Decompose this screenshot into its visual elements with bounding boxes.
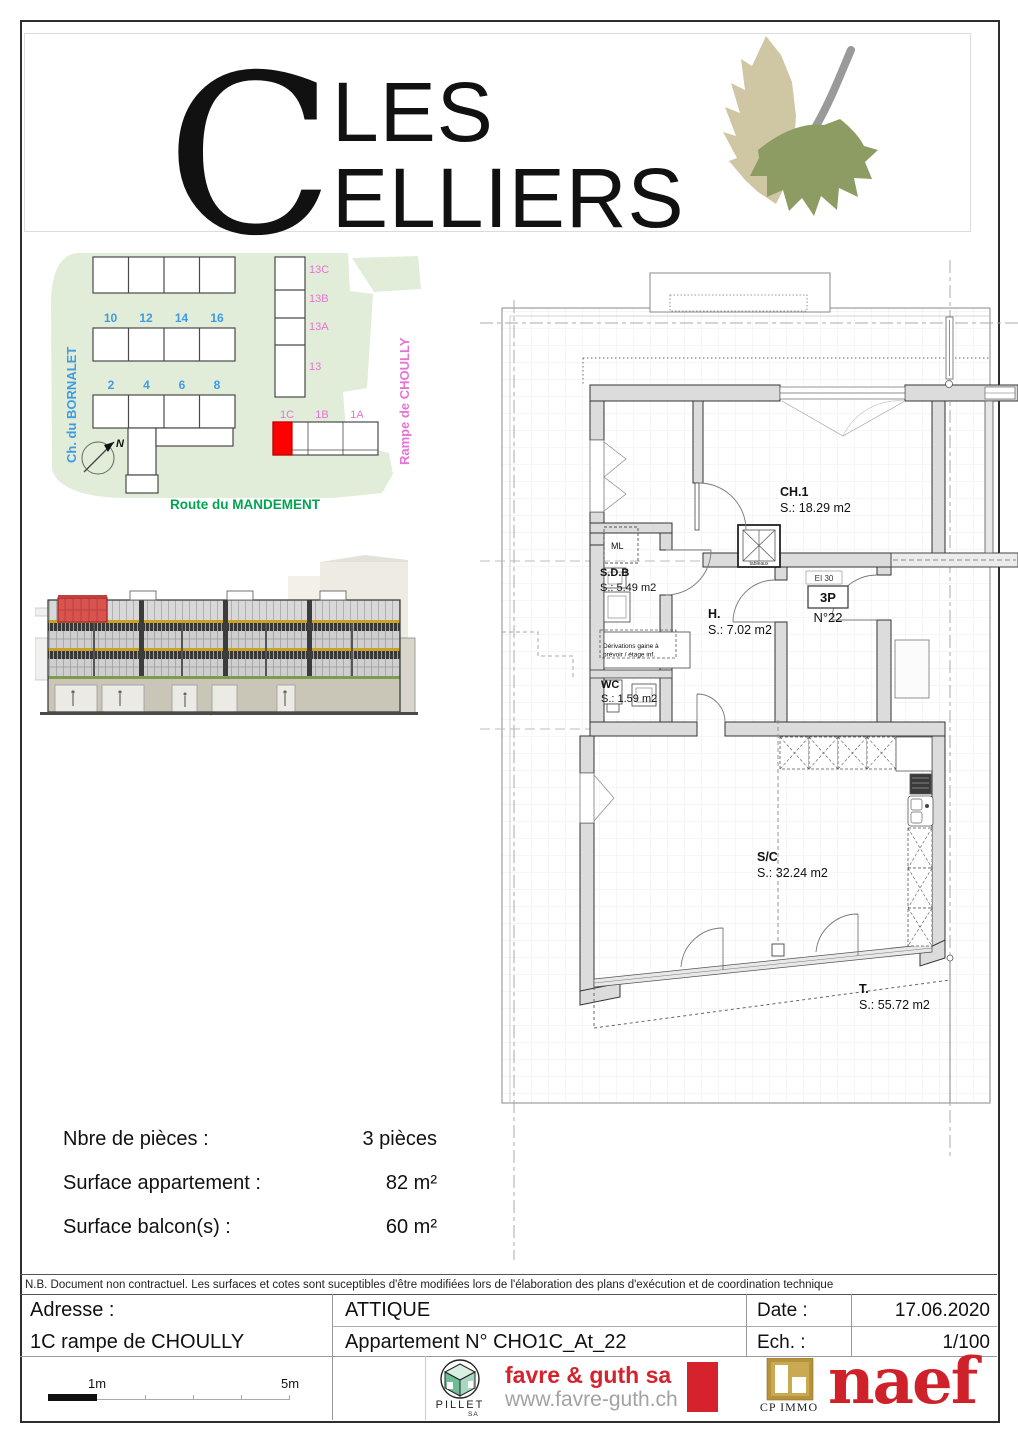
svg-text:8: 8 — [214, 378, 221, 392]
address-value: 1C rampe de CHOULLY — [30, 1331, 244, 1354]
summary-value-pieces: 3 pièces — [300, 1128, 437, 1151]
favre-guth-url: www.favre-guth.ch — [505, 1388, 678, 1412]
logo-word-elliers: ELLIERS — [332, 156, 685, 240]
date-value: 17.06.2020 — [862, 1300, 990, 1322]
summary-label-balcony: Surface balcon(s) : — [63, 1216, 231, 1239]
right-wall — [400, 638, 415, 714]
site-plan: 10 12 14 16 2 4 6 8 13C 13B 13A 13 1C 1B… — [40, 245, 470, 535]
highlighted-unit-1c — [273, 422, 292, 455]
svg-text:S.: 7.02 m2: S.: 7.02 m2 — [708, 623, 772, 637]
disclaimer-note: N.B. Document non contractuel. Les surfa… — [25, 1279, 975, 1291]
building-elevation — [35, 548, 450, 733]
site-plan-green-patch — [352, 256, 421, 292]
street-choully: Rampe de CHOULLY — [397, 337, 412, 465]
svg-text:CH.1: CH.1 — [780, 485, 809, 499]
svg-text:S/C: S/C — [757, 850, 778, 864]
floor-plan: tableaux — [480, 260, 1018, 1260]
svg-text:S.: 1.59 m2: S.: 1.59 m2 — [601, 693, 657, 705]
roof-drain — [946, 317, 954, 388]
svg-text:WC: WC — [601, 679, 619, 691]
scale-bar-5m: 5m — [275, 1376, 305, 1391]
street-mandement: Route du MANDEMENT — [170, 497, 321, 512]
summary-label-pieces: Nbre de pièces : — [63, 1128, 209, 1151]
svg-text:4: 4 — [143, 378, 150, 392]
apartment-number: Appartement N° CHO1C_At_22 — [345, 1331, 626, 1354]
door-number-label: N°22 — [813, 610, 842, 625]
naef-logo-text: naef — [828, 1350, 976, 1414]
cp-immo-text: CP IMMO — [753, 1400, 825, 1415]
svg-text:ML: ML — [611, 541, 624, 551]
svg-text:Dérivations gaine à: Dérivations gaine à — [603, 643, 659, 650]
favre-guth-name: favre & guth sa — [505, 1362, 671, 1389]
svg-text:H.: H. — [708, 607, 721, 621]
svg-text:13C: 13C — [309, 264, 329, 276]
pillet-logo-icon — [432, 1358, 488, 1400]
floor-value: ATTIQUE — [345, 1299, 430, 1322]
summary-label-apartment: Surface appartement : — [63, 1172, 261, 1195]
svg-text:2: 2 — [108, 378, 115, 392]
logo-initial: C — [166, 46, 334, 266]
street-bornalet: Ch. du BORNALET — [64, 347, 79, 463]
svg-text:1A: 1A — [350, 409, 364, 421]
leaf-stem — [816, 50, 851, 126]
svg-text:14: 14 — [175, 311, 189, 325]
svg-text:13B: 13B — [309, 293, 329, 305]
fire-rating-label: EI 30 — [815, 574, 834, 583]
svg-text:1B: 1B — [315, 409, 328, 421]
pillet-logo-text: PILLET — [430, 1399, 490, 1411]
summary-value-balcony: 60 m² — [300, 1216, 437, 1239]
pillet-logo-sub: SA — [468, 1411, 479, 1418]
svg-text:1C: 1C — [280, 409, 294, 421]
date-label: Date : — [757, 1300, 808, 1322]
svg-text:tableaux: tableaux — [750, 561, 769, 567]
address-label: Adresse : — [30, 1299, 114, 1322]
scale-label: Ech. : — [757, 1332, 806, 1354]
cp-immo-logo-icon — [755, 1358, 825, 1402]
svg-text:S.: 18.29 m2: S.: 18.29 m2 — [780, 501, 851, 515]
svg-text:13: 13 — [309, 361, 321, 373]
doormat — [895, 640, 929, 698]
highlighted-attic-unit — [58, 595, 107, 622]
svg-text:S.: 32.24 m2: S.: 32.24 m2 — [757, 866, 828, 880]
roof-protrusion — [650, 273, 830, 312]
svg-text:S.D.B: S.D.B — [600, 567, 629, 579]
svg-text:prévoir / étage inf.: prévoir / étage inf. — [603, 652, 655, 659]
terrace-field — [502, 308, 990, 1103]
svg-text:16: 16 — [210, 311, 224, 325]
svg-text:N: N — [116, 438, 125, 450]
svg-text:T.: T. — [859, 982, 869, 996]
svg-text:S.: 55.72 m2: S.: 55.72 m2 — [859, 998, 930, 1012]
neighbor-wall — [985, 401, 993, 553]
red-block-logo — [687, 1362, 718, 1412]
svg-text:13A: 13A — [309, 321, 329, 333]
svg-text:10: 10 — [104, 311, 118, 325]
logo-word-les: LES — [332, 70, 494, 154]
sdb-wc-partition — [590, 670, 672, 678]
scale-bar-filled — [48, 1394, 97, 1401]
svg-text:S.: 5.49 m2: S.: 5.49 m2 — [600, 582, 656, 594]
scale-bar-1m: 1m — [82, 1376, 112, 1391]
svg-text:12: 12 — [139, 311, 153, 325]
door-type-label: 3P — [820, 590, 836, 605]
summary-value-apartment: 82 m² — [300, 1172, 437, 1195]
leaf-logo-icon — [688, 28, 892, 233]
site-plan-1-labels: 1C 1B 1A — [280, 409, 364, 421]
svg-text:6: 6 — [179, 378, 186, 392]
sink — [908, 796, 933, 826]
technical-shaft: tableaux — [738, 525, 780, 567]
stove — [910, 774, 931, 794]
